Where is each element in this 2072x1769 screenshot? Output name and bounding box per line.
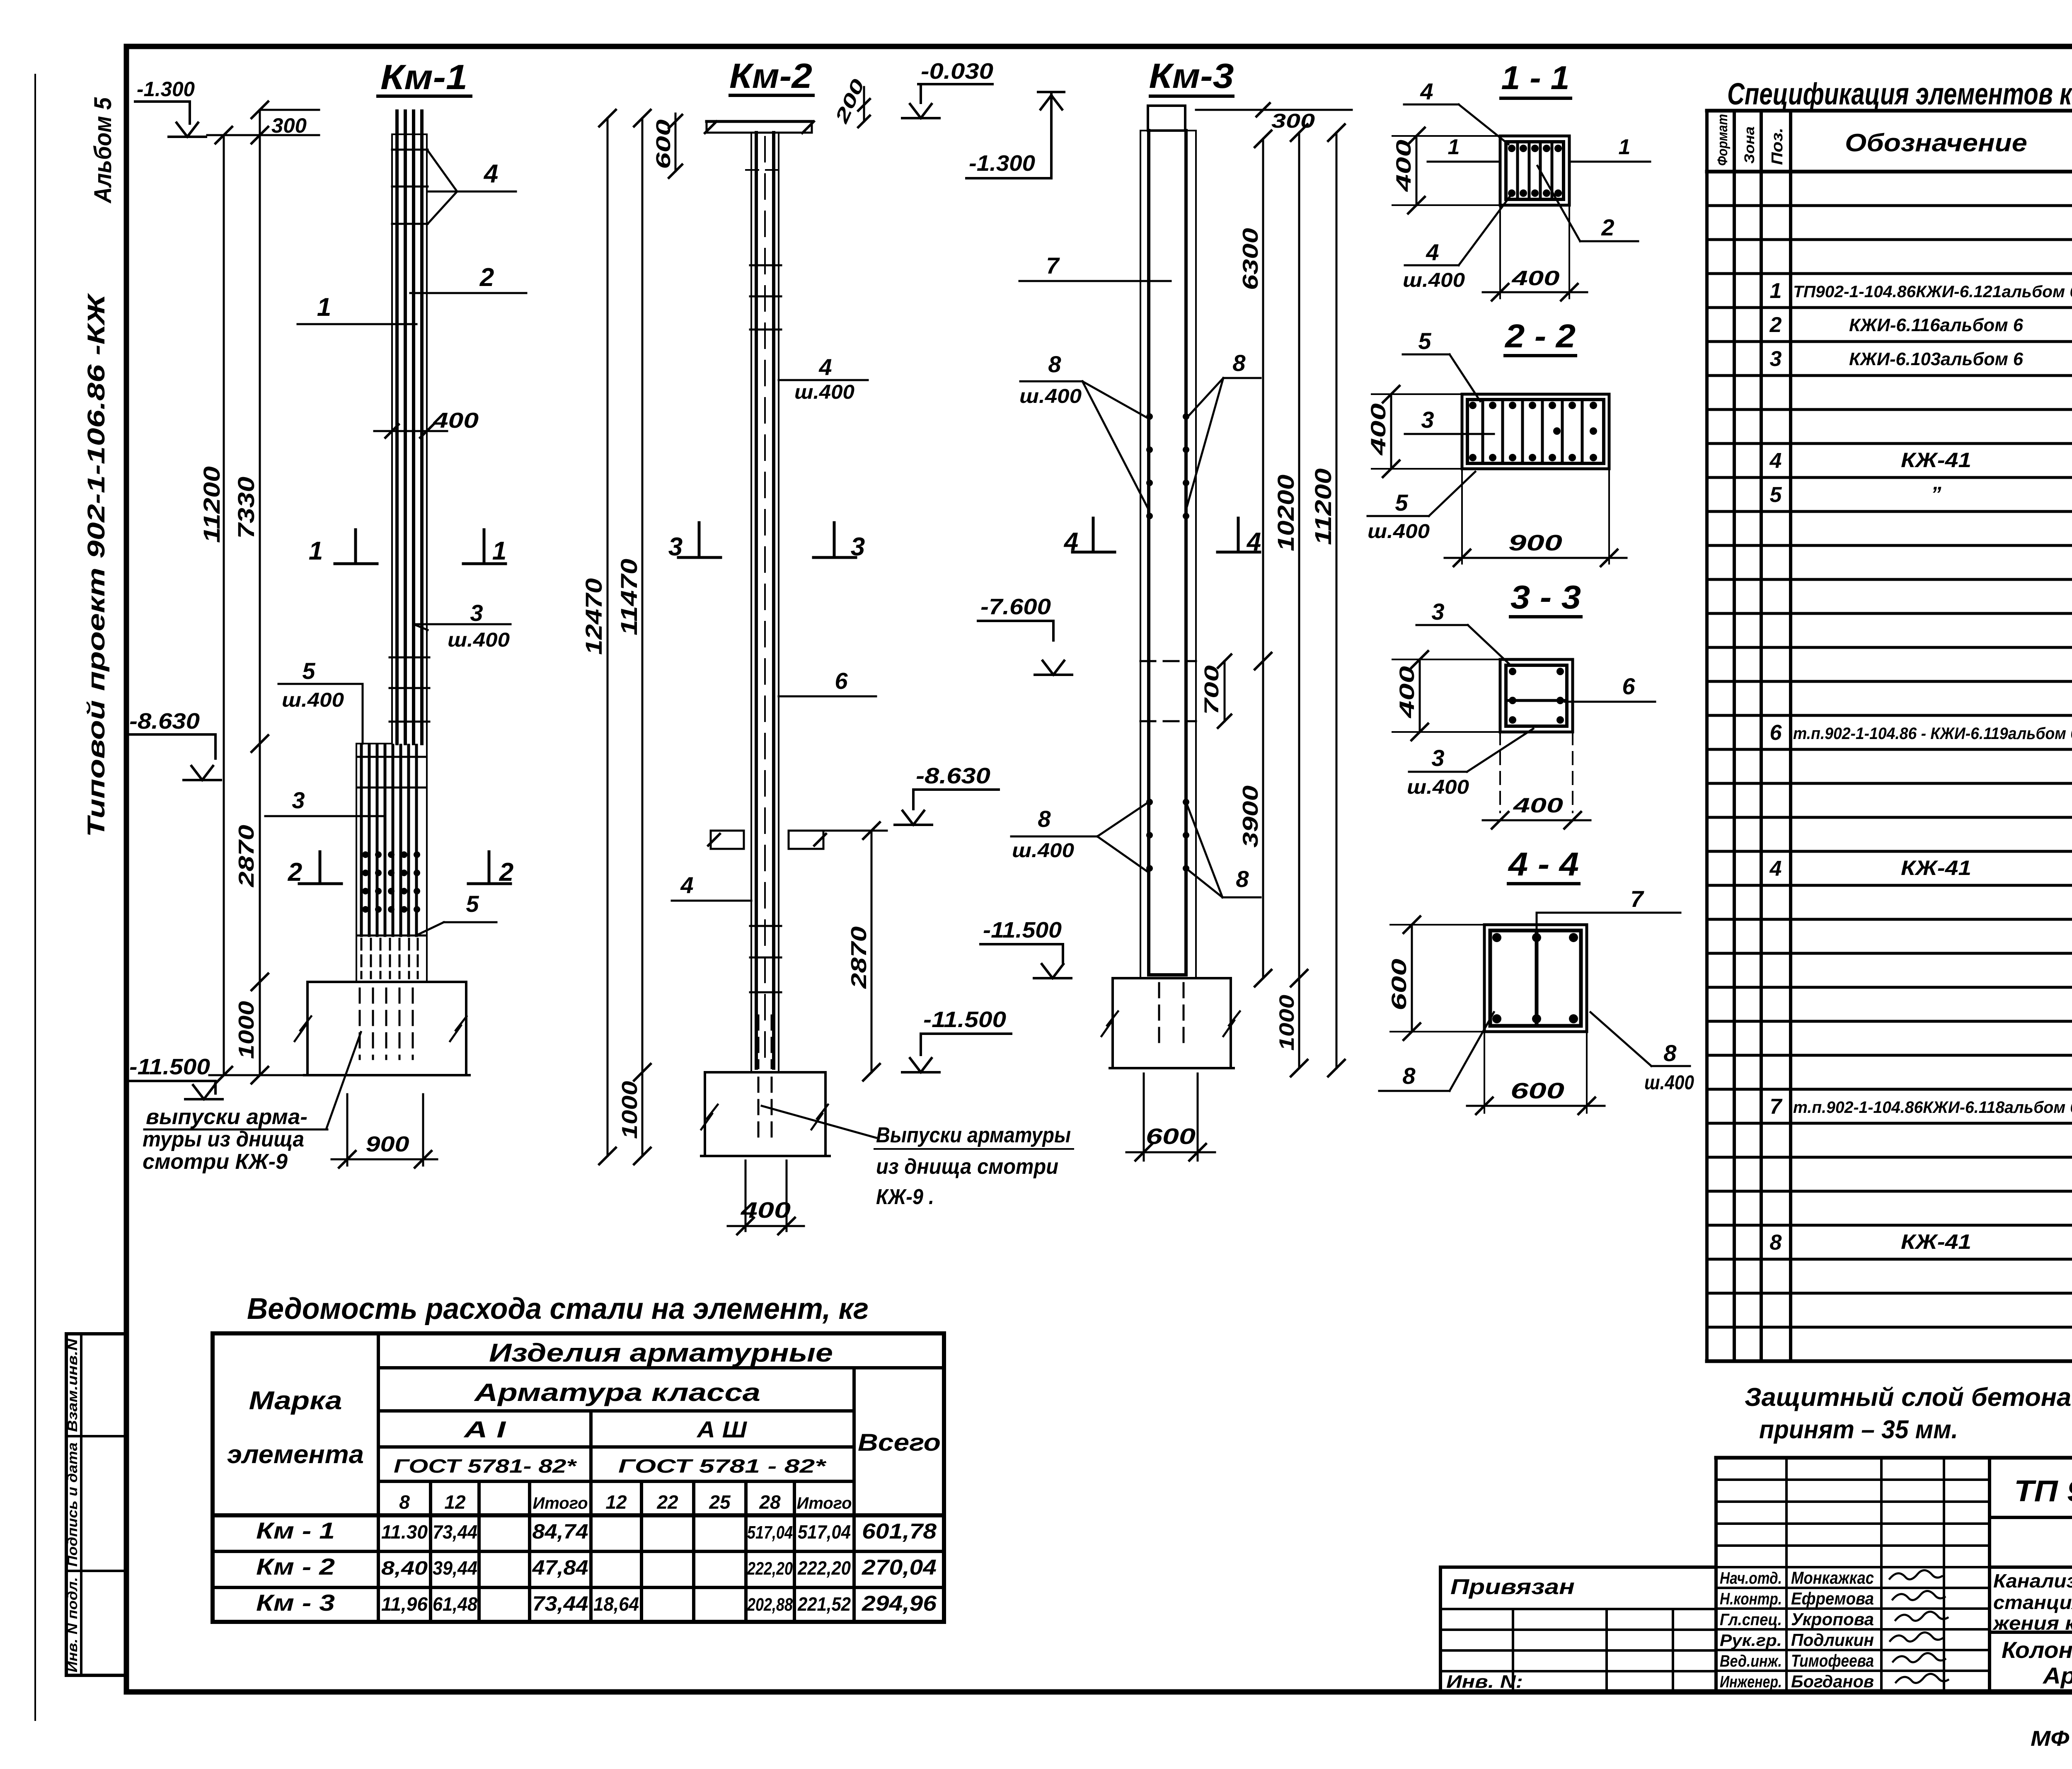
svg-text:Ведомость расхода стали на: Ведомость расхода стали на элемент, кг bbox=[247, 1292, 869, 1326]
svg-text:73,44: 73,44 bbox=[433, 1521, 477, 1543]
svg-text:3: 3 bbox=[668, 533, 683, 561]
svg-text:1: 1 bbox=[309, 537, 323, 565]
svg-text:КЖИ-6.103альбом 6: КЖИ-6.103альбом 6 bbox=[1849, 349, 2024, 369]
svg-text:221,52: 221,52 bbox=[797, 1593, 851, 1615]
svg-text:2 - 2: 2 - 2 bbox=[1504, 317, 1576, 354]
svg-text:7: 7 bbox=[1046, 252, 1060, 279]
svg-text:Итого: Итого bbox=[533, 1494, 588, 1512]
svg-text:8: 8 bbox=[1038, 806, 1051, 832]
svg-text:4: 4 bbox=[1063, 528, 1078, 556]
svg-text:1000: 1000 bbox=[1275, 995, 1298, 1051]
svg-text:ш.400: ш.400 bbox=[448, 629, 510, 651]
svg-text:Итого: Итого bbox=[796, 1494, 852, 1512]
svg-text:84,74: 84,74 bbox=[533, 1520, 588, 1543]
svg-text:жения коллектора -7,0м.: жения коллектора -7,0м. bbox=[1992, 1612, 2072, 1634]
svg-text:Формат: Формат bbox=[1715, 114, 1731, 166]
svg-text:7: 7 bbox=[1770, 1095, 1783, 1119]
svg-text:А I: А I bbox=[463, 1416, 506, 1442]
svg-text:Подликин: Подликин bbox=[1791, 1630, 1874, 1650]
svg-text:400: 400 bbox=[1395, 666, 1418, 719]
svg-text:270,04: 270,04 bbox=[862, 1556, 937, 1580]
svg-text:3: 3 bbox=[292, 787, 305, 813]
svg-text:Марка: Марка bbox=[249, 1386, 342, 1415]
svg-text:-1.300: -1.300 bbox=[137, 78, 195, 101]
svg-text:4: 4 bbox=[1420, 78, 1433, 104]
svg-text:Н.контр.: Н.контр. bbox=[1720, 1590, 1782, 1608]
svg-text:2870: 2870 bbox=[235, 825, 259, 887]
svg-text:Взам.инв.N: Взам.инв.N bbox=[65, 1338, 80, 1432]
svg-text:КЖ-41: КЖ-41 bbox=[1901, 856, 1971, 880]
svg-text:т.п.902-1-104.86 - КЖИ-6.119ал: т.п.902-1-104.86 - КЖИ-6.119альбом 6 bbox=[1793, 725, 2072, 743]
svg-text:5: 5 bbox=[466, 891, 479, 917]
svg-text:300: 300 bbox=[1271, 110, 1315, 132]
svg-text:18,64: 18,64 bbox=[593, 1593, 639, 1615]
svg-text:Типовой проект 902-1-106.86: Типовой проект 902-1-106.86 -КЖ bbox=[83, 293, 110, 837]
svg-text:4: 4 bbox=[1426, 239, 1439, 265]
svg-text:из днища смотри: из днища смотри bbox=[876, 1155, 1058, 1179]
svg-text:Км - 3: Км - 3 bbox=[256, 1590, 335, 1616]
svg-text:8: 8 bbox=[1402, 1063, 1416, 1089]
svg-text:Изделия арматурные: Изделия арматурные bbox=[489, 1339, 833, 1367]
svg-text:6: 6 bbox=[1770, 721, 1782, 745]
svg-text:600: 600 bbox=[1146, 1124, 1196, 1149]
svg-text:Всего: Всего bbox=[858, 1429, 941, 1456]
svg-text:4: 4 bbox=[1246, 528, 1261, 556]
svg-text:Монкажкас: Монкажкас bbox=[1791, 1568, 1874, 1587]
svg-text:12: 12 bbox=[444, 1491, 466, 1513]
svg-text:8: 8 bbox=[1236, 866, 1249, 892]
svg-text:2870: 2870 bbox=[847, 926, 871, 989]
svg-text:11200: 11200 bbox=[1310, 468, 1336, 545]
svg-text:400: 400 bbox=[741, 1198, 791, 1223]
svg-text:3: 3 bbox=[1431, 599, 1444, 625]
svg-text:-11.500: -11.500 bbox=[923, 1007, 1006, 1032]
svg-text:4 - 4: 4 - 4 bbox=[1508, 846, 1579, 882]
svg-text:400: 400 bbox=[1392, 140, 1415, 192]
svg-text:3: 3 bbox=[470, 600, 483, 626]
svg-text:Канализационная насосная: Канализационная насосная bbox=[1993, 1570, 2072, 1592]
svg-text:3900: 3900 bbox=[1239, 785, 1263, 848]
svg-text:3: 3 bbox=[851, 533, 865, 561]
svg-text:222,20: 222,20 bbox=[747, 1558, 793, 1579]
svg-text:смотри КЖ-9: смотри КЖ-9 bbox=[143, 1150, 288, 1174]
svg-text:-8.630: -8.630 bbox=[916, 763, 990, 788]
svg-text:517,04: 517,04 bbox=[798, 1521, 851, 1543]
svg-text:1: 1 bbox=[1619, 135, 1631, 159]
svg-text:900: 900 bbox=[1508, 531, 1562, 555]
svg-text:8: 8 bbox=[1770, 1231, 1782, 1255]
svg-text:А Ш: А Ш bbox=[696, 1416, 747, 1442]
svg-text:6300: 6300 bbox=[1239, 228, 1263, 290]
svg-text:Зона: Зона bbox=[1742, 126, 1757, 164]
svg-text:4: 4 bbox=[483, 160, 498, 188]
svg-text:4: 4 bbox=[818, 354, 832, 380]
svg-text:Богданов: Богданов bbox=[1791, 1672, 1874, 1691]
svg-text:61,48: 61,48 bbox=[433, 1593, 477, 1615]
svg-text:ш.400: ш.400 bbox=[794, 381, 854, 403]
svg-text:294,96: 294,96 bbox=[862, 1592, 937, 1616]
svg-text:39,44: 39,44 bbox=[433, 1557, 477, 1579]
svg-text:4: 4 bbox=[1769, 857, 1782, 881]
svg-text:300: 300 bbox=[271, 114, 307, 137]
svg-text:600: 600 bbox=[653, 119, 675, 169]
svg-text:10200: 10200 bbox=[1273, 475, 1299, 551]
svg-text:12: 12 bbox=[605, 1491, 627, 1513]
svg-text:8,40: 8,40 bbox=[381, 1557, 428, 1579]
svg-text:Спецификация элементов к моно: Спецификация элементов к монолитным коло… bbox=[1727, 77, 2072, 111]
svg-text:ш.400: ш.400 bbox=[282, 689, 344, 711]
svg-text:Вед.инж.: Вед.инж. bbox=[1720, 1652, 1782, 1670]
svg-text:28: 28 bbox=[759, 1491, 781, 1513]
svg-text:1: 1 bbox=[1770, 279, 1782, 303]
svg-text:ТП 902-1-106.86: ТП 902-1-106.86 bbox=[2014, 1475, 2072, 1508]
svg-text:Альбом 5: Альбом 5 bbox=[90, 97, 116, 204]
svg-text:-11.500: -11.500 bbox=[983, 918, 1062, 943]
svg-text:Гл.спец.: Гл.спец. bbox=[1720, 1611, 1782, 1629]
svg-text:8: 8 bbox=[399, 1491, 410, 1513]
svg-text:400: 400 bbox=[1511, 267, 1560, 290]
svg-text:2: 2 bbox=[288, 858, 302, 887]
svg-text:Защитный слой бетона для р: Защитный слой бетона для рабочей арматур… bbox=[1745, 1383, 2072, 1412]
svg-text:туры из днища: туры из днища bbox=[143, 1127, 304, 1151]
svg-text:Км-1: Км-1 bbox=[380, 58, 467, 97]
svg-text:ш.400: ш.400 bbox=[1403, 269, 1465, 291]
svg-text:”: ” bbox=[1931, 482, 1941, 506]
svg-text:8: 8 bbox=[1663, 1040, 1677, 1066]
svg-text:ш.400: ш.400 bbox=[1368, 521, 1430, 543]
svg-text:Тимофеева: Тимофеева bbox=[1791, 1651, 1874, 1670]
svg-text:5: 5 bbox=[1418, 328, 1431, 354]
svg-text:4: 4 bbox=[1769, 449, 1782, 473]
svg-text:2: 2 bbox=[1769, 313, 1782, 337]
svg-text:Арматура класса: Арматура класса bbox=[473, 1379, 760, 1406]
svg-text:6: 6 bbox=[835, 668, 848, 694]
svg-text:Км-3: Км-3 bbox=[1149, 56, 1234, 95]
svg-text:Нач.отд.: Нач.отд. bbox=[1720, 1569, 1782, 1587]
svg-text:3 - 3: 3 - 3 bbox=[1510, 579, 1581, 616]
svg-text:ш.400: ш.400 bbox=[1019, 385, 1082, 407]
svg-text:Инженер.: Инженер. bbox=[1720, 1673, 1782, 1691]
svg-text:МФ 2142-01 ЧЧ: МФ 2142-01 ЧЧ bbox=[2031, 1727, 2072, 1751]
svg-text:-11.500: -11.500 bbox=[129, 1054, 210, 1079]
svg-text:КЖ-41: КЖ-41 bbox=[1901, 448, 1971, 472]
svg-text:11200: 11200 bbox=[198, 466, 225, 543]
svg-text:1: 1 bbox=[1448, 135, 1460, 159]
svg-text:Рук.гр.: Рук.гр. bbox=[1720, 1631, 1782, 1650]
svg-text:элемента: элемента bbox=[227, 1440, 364, 1469]
svg-text:5: 5 bbox=[1395, 490, 1408, 516]
svg-text:-1.300: -1.300 bbox=[969, 151, 1035, 176]
svg-text:400: 400 bbox=[1513, 794, 1564, 817]
svg-text:202,88: 202,88 bbox=[747, 1595, 793, 1615]
svg-text:1 - 1: 1 - 1 bbox=[1501, 59, 1570, 96]
svg-text:Поз.: Поз. bbox=[1769, 128, 1786, 165]
svg-text:ТП902-1-104.86КЖИ-6.121альбом: ТП902-1-104.86КЖИ-6.121альбом 6 bbox=[1793, 283, 2072, 301]
svg-text:5: 5 bbox=[1770, 483, 1782, 507]
svg-text:Привязан: Привязан bbox=[1450, 1575, 1575, 1599]
svg-text:ш.400: ш.400 bbox=[1644, 1072, 1694, 1094]
svg-text:-7.600: -7.600 bbox=[980, 594, 1051, 619]
svg-text:6: 6 bbox=[1622, 673, 1635, 699]
svg-text:КЖ-41: КЖ-41 bbox=[1901, 1230, 1971, 1253]
svg-text:900: 900 bbox=[366, 1132, 409, 1156]
svg-text:принят – 35 мм.: принят – 35 мм. bbox=[1759, 1415, 1958, 1444]
svg-text:Выпуски арматуры: Выпуски арматуры bbox=[876, 1123, 1071, 1147]
svg-text:3: 3 bbox=[1421, 407, 1434, 433]
svg-text:2: 2 bbox=[499, 858, 513, 887]
svg-text:1000: 1000 bbox=[618, 1081, 642, 1139]
svg-text:Инв. N:: Инв. N: bbox=[1446, 1672, 1523, 1692]
svg-text:1000: 1000 bbox=[235, 1001, 259, 1059]
svg-text:400: 400 bbox=[1367, 403, 1390, 456]
svg-text:ГОСТ 5781- 82*: ГОСТ 5781- 82* bbox=[394, 1455, 577, 1477]
svg-text:Колонны Км 1 ÷ Км 3.: Колонны Км 1 ÷ Км 3. bbox=[2002, 1637, 2072, 1663]
svg-text:-0.030: -0.030 bbox=[921, 59, 993, 84]
svg-text:-8.630: -8.630 bbox=[129, 709, 200, 734]
svg-text:12470: 12470 bbox=[581, 578, 607, 655]
svg-text:ш.400: ш.400 bbox=[1012, 840, 1074, 862]
svg-text:ГОСТ 5781 - 82*: ГОСТ 5781 - 82* bbox=[618, 1455, 827, 1477]
svg-text:4: 4 bbox=[680, 872, 693, 898]
svg-text:2: 2 bbox=[1601, 214, 1614, 240]
svg-text:7: 7 bbox=[1630, 886, 1644, 912]
svg-text:222,20: 222,20 bbox=[797, 1557, 851, 1579]
svg-text:3: 3 bbox=[1431, 745, 1444, 771]
svg-text:8: 8 bbox=[1048, 351, 1061, 377]
svg-text:КЖ-9 .: КЖ-9 . bbox=[876, 1185, 934, 1209]
svg-text:1: 1 bbox=[317, 293, 331, 322]
svg-text:ш.400: ш.400 bbox=[1407, 776, 1469, 798]
svg-text:700: 700 bbox=[1201, 665, 1223, 715]
svg-text:400: 400 bbox=[433, 409, 479, 433]
svg-text:Обозначение: Обозначение bbox=[1845, 129, 2027, 157]
svg-text:Армирование.: Армирование. bbox=[2042, 1662, 2072, 1689]
svg-text:Ефремова: Ефремова bbox=[1791, 1589, 1874, 1608]
svg-text:Подпись и дата: Подпись и дата bbox=[65, 1442, 80, 1567]
svg-text:11470: 11470 bbox=[616, 559, 642, 635]
svg-text:8: 8 bbox=[1232, 350, 1246, 376]
svg-text:станция при глубине зало-: станция при глубине зало- bbox=[1993, 1592, 2072, 1613]
svg-text:Км - 2: Км - 2 bbox=[256, 1553, 335, 1580]
svg-text:7330: 7330 bbox=[233, 477, 259, 539]
svg-text:73,44: 73,44 bbox=[533, 1592, 588, 1615]
svg-text:22: 22 bbox=[656, 1491, 678, 1513]
svg-text:11.30: 11.30 bbox=[381, 1521, 428, 1543]
svg-text:КЖИ-6.116альбом 6: КЖИ-6.116альбом 6 bbox=[1849, 315, 2024, 335]
svg-text:25: 25 bbox=[709, 1491, 731, 1513]
svg-text:600: 600 bbox=[1510, 1078, 1564, 1103]
svg-text:т.п.902-1-104.86КЖИ-6.118альбо: т.п.902-1-104.86КЖИ-6.118альбом 6 bbox=[1793, 1098, 2072, 1117]
svg-text:11,96: 11,96 bbox=[381, 1593, 428, 1615]
svg-text:2: 2 bbox=[479, 263, 494, 292]
svg-text:3: 3 bbox=[1770, 347, 1782, 371]
svg-text:Км - 1: Км - 1 bbox=[256, 1517, 335, 1544]
svg-text:517,04: 517,04 bbox=[747, 1522, 793, 1543]
svg-text:Инв. N подл.: Инв. N подл. bbox=[65, 1577, 80, 1672]
svg-text:47,84: 47,84 bbox=[532, 1556, 588, 1579]
svg-text:выпуски арма-: выпуски арма- bbox=[146, 1105, 307, 1129]
svg-text:1: 1 bbox=[492, 537, 506, 565]
svg-text:600: 600 bbox=[1387, 959, 1411, 1011]
svg-text:Км-2: Км-2 bbox=[729, 56, 812, 95]
svg-text:Укропова: Укропова bbox=[1791, 1609, 1874, 1629]
svg-text:601,78: 601,78 bbox=[862, 1519, 937, 1544]
svg-text:5: 5 bbox=[302, 658, 315, 684]
